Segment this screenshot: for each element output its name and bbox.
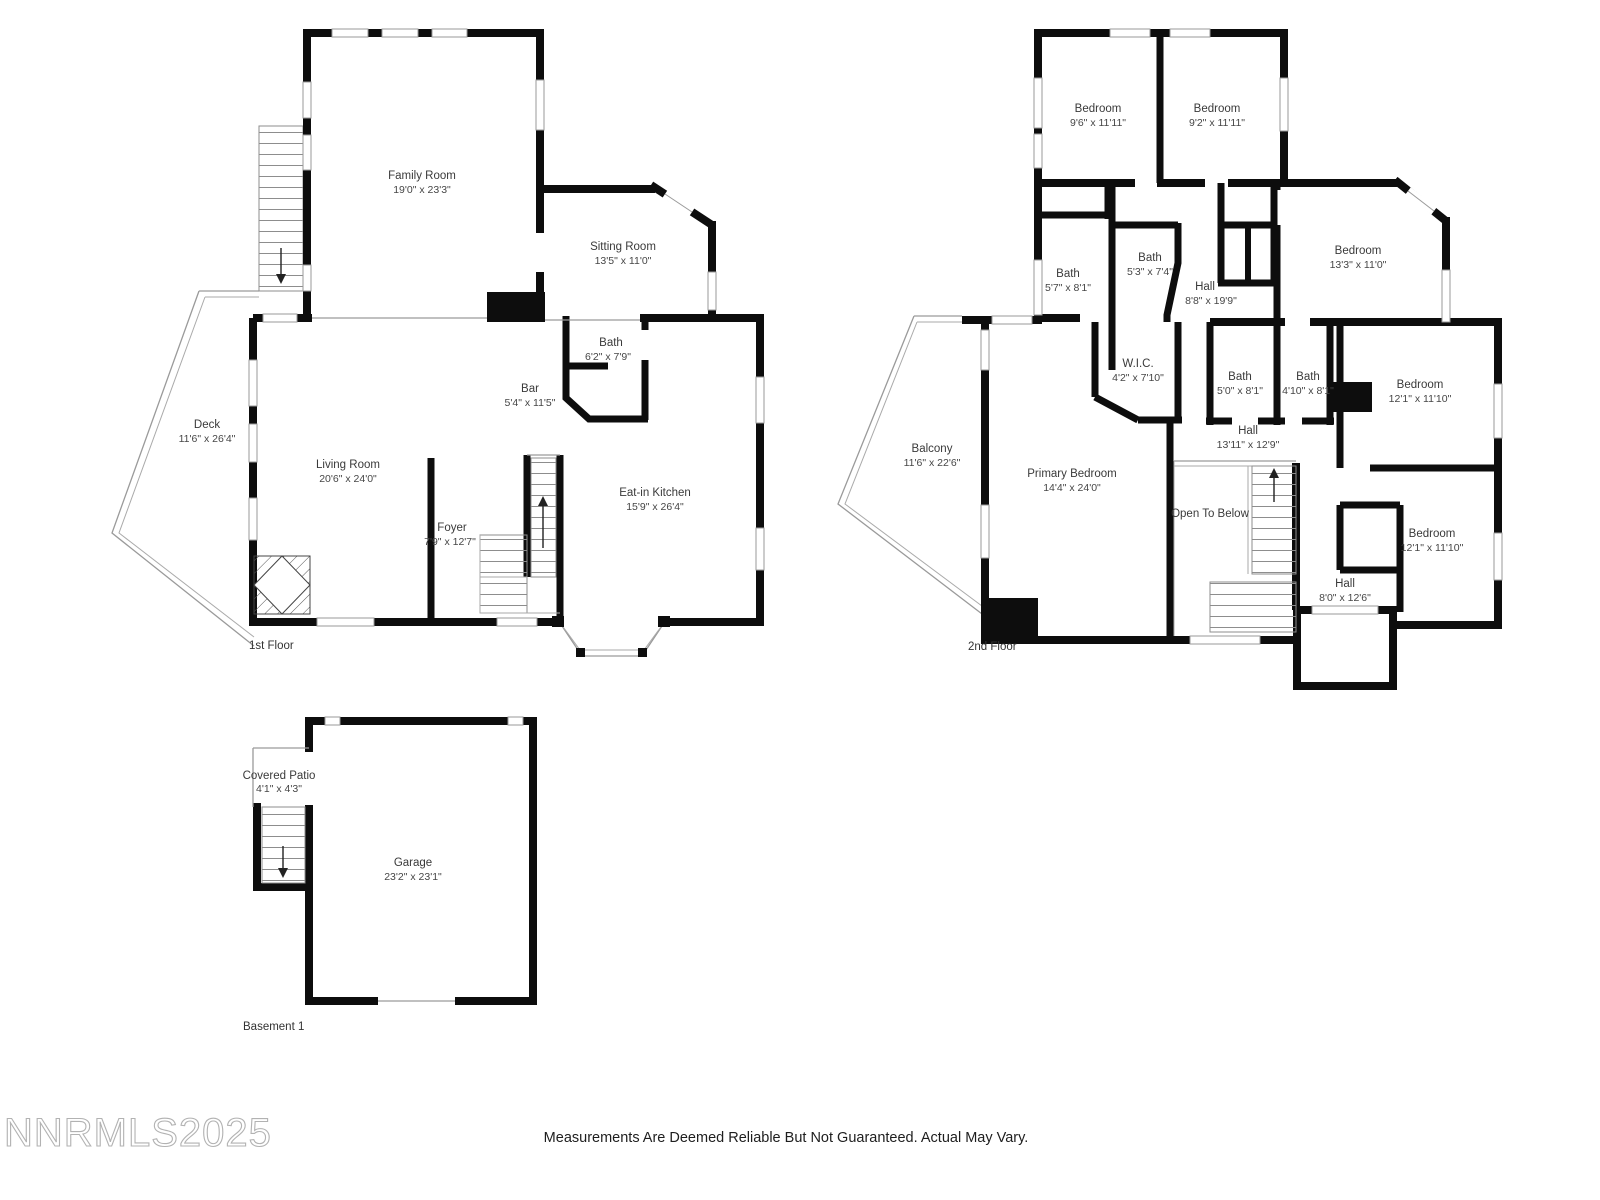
fireplace-block [487,292,545,322]
window [1170,29,1210,37]
window [1280,78,1288,131]
room-dims-foyer: 7'9" x 12'7" [424,536,476,548]
chase-block [1330,382,1372,412]
second-floor-plan: Bedroom 9'6" x 11'11" Bedroom 9'2" x 11'… [838,29,1502,690]
disclaimer-text: Measurements Are Deemed Reliable But Not… [544,1130,1029,1146]
room-label-bath-1: Bath [599,337,623,349]
room-label-bath-410: Bath [1296,371,1320,383]
window [249,424,257,462]
room-dims-bedroom-4: 12'1" x 11'10" [1389,393,1452,405]
window [497,618,537,626]
window [1442,270,1450,322]
window [1034,78,1042,128]
room-dims-bedroom-5: 12'1" x 11'10" [1401,542,1464,554]
room-dims-hall-upper: 8'8" x 19'9" [1185,295,1237,307]
window [303,265,311,291]
corner-block [985,598,1038,642]
room-dims-wic: 4'2" x 7'10" [1112,372,1164,384]
room-label-bedroom-5: Bedroom [1409,528,1456,540]
room-dims-sitting-room: 13'5" x 11'0" [595,255,652,267]
floorplan-drawing: Family Room 19'0" x 23'3" Sitting Room 1… [0,0,1600,1200]
room-label-kitchen: Eat-in Kitchen [619,487,691,499]
room-dims-kitchen: 15'9" x 26'4" [626,501,684,513]
window [317,618,374,626]
room-dims-bedroom-2: 9'2" x 11'11" [1189,117,1245,129]
room-label-bedroom-4: Bedroom [1397,379,1444,391]
window [756,528,764,570]
window [536,80,544,130]
window [1034,134,1042,168]
room-dims-living-room: 20'6" x 24'0" [319,473,377,485]
room-label-wic: W.I.C. [1122,358,1153,370]
room-label-garage: Garage [394,857,432,869]
corner-fireplace [254,556,310,614]
room-dims-bath-410: 4'10" x 8'1" [1282,385,1334,397]
room-dims-hall-lower: 8'0" x 12'6" [1319,592,1371,604]
room-dims-bath-50: 5'0" x 8'1" [1217,385,1263,397]
room-label-bar: Bar [521,383,539,395]
room-dims-hall-center: 13'11" x 12'9" [1217,439,1280,451]
room-label-hall-upper: Hall [1195,281,1215,293]
room-dims-bath-57: 5'7" x 8'1" [1045,282,1091,294]
mls-watermark: NNRMLS2025 [4,1111,272,1155]
window [249,498,257,540]
room-dims-bedroom-3: 13'3" x 11'0" [1330,259,1387,271]
room-label-bedroom-2: Bedroom [1194,103,1241,115]
window [992,316,1032,324]
floor-label-1st: 1st Floor [249,640,294,652]
window [263,314,297,322]
window [249,360,257,406]
exterior-stairs [259,126,303,291]
window [1312,606,1378,614]
open-boundary [312,318,640,455]
room-dims-family-room: 19'0" x 23'3" [393,184,451,196]
room-label-open-to-below: Open To Below [1171,508,1249,520]
window [981,330,989,370]
room-dims-bedroom-1: 9'6" x 11'11" [1070,117,1126,129]
window [756,377,764,423]
room-label-family-room: Family Room [388,170,456,182]
room-dims-deck: 11'6" x 26'4" [179,433,236,445]
window [1494,533,1502,580]
bay-window [552,616,670,657]
room-label-foyer: Foyer [437,522,467,534]
window [332,29,368,37]
room-dims-bath-1: 6'2" x 7'9" [585,351,631,363]
room-label-primary-bedroom: Primary Bedroom [1027,468,1116,480]
window [981,505,989,558]
room-label-bath-53: Bath [1138,252,1162,264]
room-label-bedroom-3: Bedroom [1335,245,1382,257]
room-dims-primary-bedroom: 14'4" x 24'0" [1043,482,1101,494]
room-label-living-room: Living Room [316,459,380,471]
deck-outline [112,291,259,646]
room-dims-bath-53: 5'3" x 7'4" [1127,266,1173,278]
room-label-covered-patio: Covered Patio [243,770,316,782]
room-label-bedroom-1: Bedroom [1075,103,1122,115]
floor-label-basement: Basement 1 [243,1021,304,1033]
room-dims-balcony: 11'6" x 22'6" [904,457,961,469]
room-label-balcony: Balcony [912,443,953,455]
stairwell [1174,461,1296,636]
patio-stairs [262,807,305,883]
room-dims-bar: 5'4" x 11'5" [505,397,556,409]
floor-label-2nd: 2nd Floor [968,641,1017,653]
window [303,82,311,118]
room-label-deck: Deck [194,419,220,431]
window [1494,384,1502,438]
floorplan-page: Family Room 19'0" x 23'3" Sitting Room 1… [0,0,1600,1200]
room-dims-garage: 23'2" x 23'1" [384,871,442,883]
window [1034,260,1042,315]
room-label-hall-lower: Hall [1335,578,1355,590]
window [708,272,716,310]
first-floor-plan: Family Room 19'0" x 23'3" Sitting Room 1… [112,29,764,657]
room-label-sitting-room: Sitting Room [590,241,656,253]
window [325,717,340,725]
basement-plan: Covered Patio 4'1" x 4'3" Garage 23'2" x… [243,717,537,1033]
window [1190,636,1260,644]
room-dims-covered-patio: 4'1" x 4'3" [256,783,302,795]
window [508,717,523,725]
window [432,29,467,37]
room-label-bath-57: Bath [1056,268,1080,280]
window [303,135,311,170]
room-label-hall-center: Hall [1238,425,1258,437]
foyer-stairs [480,458,560,613]
room-label-bath-50: Bath [1228,371,1252,383]
window [1110,29,1150,37]
window [382,29,418,37]
